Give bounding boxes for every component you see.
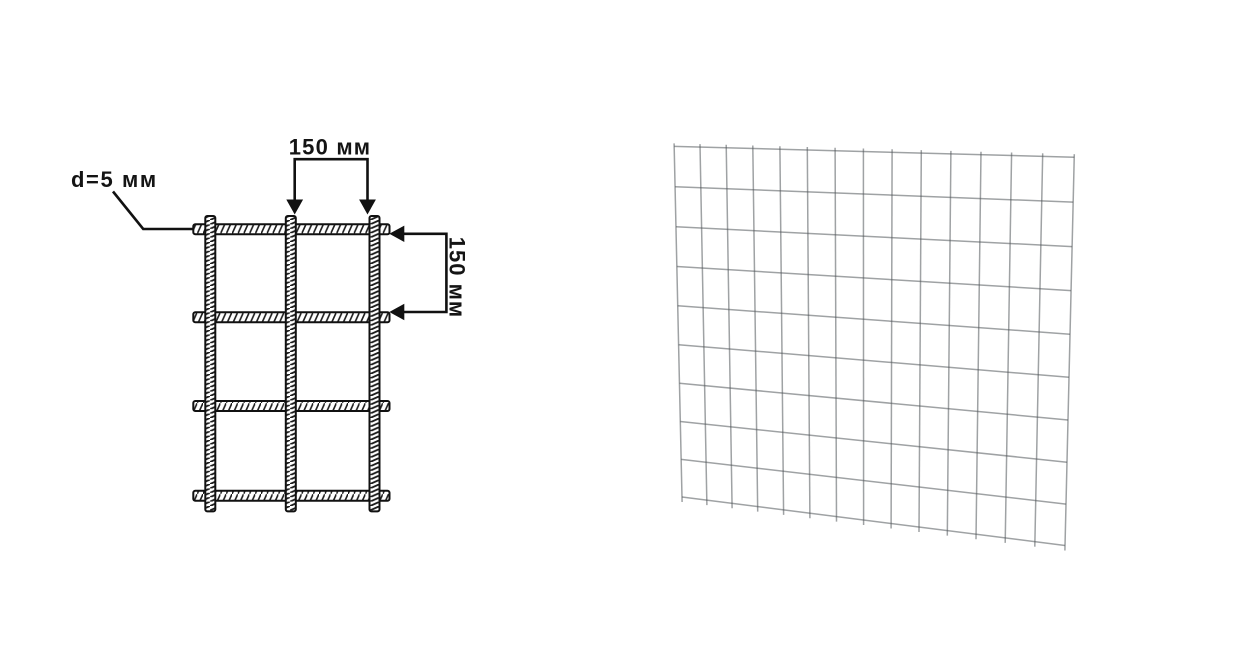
svg-text:d=5 мм: d=5 мм [71,167,158,192]
svg-text:150 мм: 150 мм [289,135,372,160]
svg-text:150 мм: 150 мм [445,237,470,318]
